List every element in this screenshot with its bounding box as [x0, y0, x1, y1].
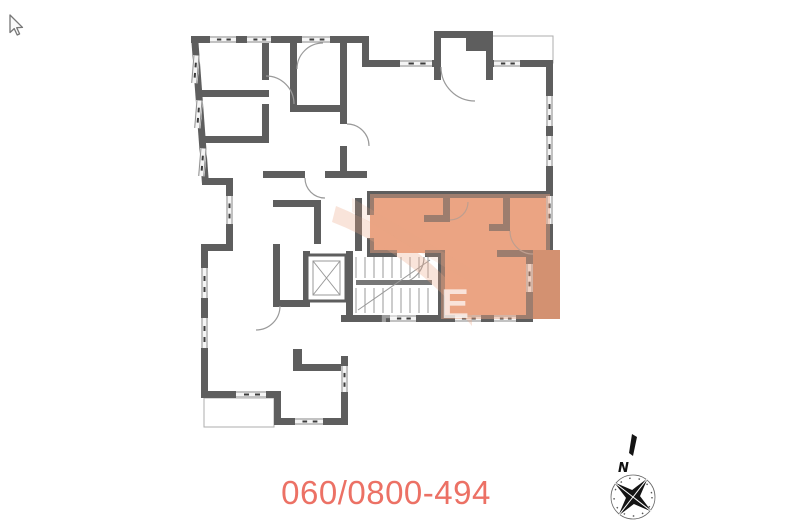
watermark-letter-faint: E [380, 309, 399, 340]
mouse-cursor-icon [10, 15, 23, 35]
screenshot-stage: E E N 060/0800-494 [0, 0, 800, 531]
stair-handrail [356, 280, 432, 285]
watermark-letter: E [441, 280, 469, 327]
phone-number: 060/0800-494 [262, 474, 510, 512]
terrace-outline-top-right [490, 36, 553, 63]
terrace-outline-bottom-left [204, 398, 274, 427]
floor-plan: E E N [0, 0, 800, 531]
compass-star-icon [599, 463, 666, 530]
compass-rose: N [599, 434, 666, 531]
compass-north-label: N [618, 461, 629, 476]
elevator [307, 255, 346, 301]
compass-north-arrow-icon [629, 434, 637, 456]
